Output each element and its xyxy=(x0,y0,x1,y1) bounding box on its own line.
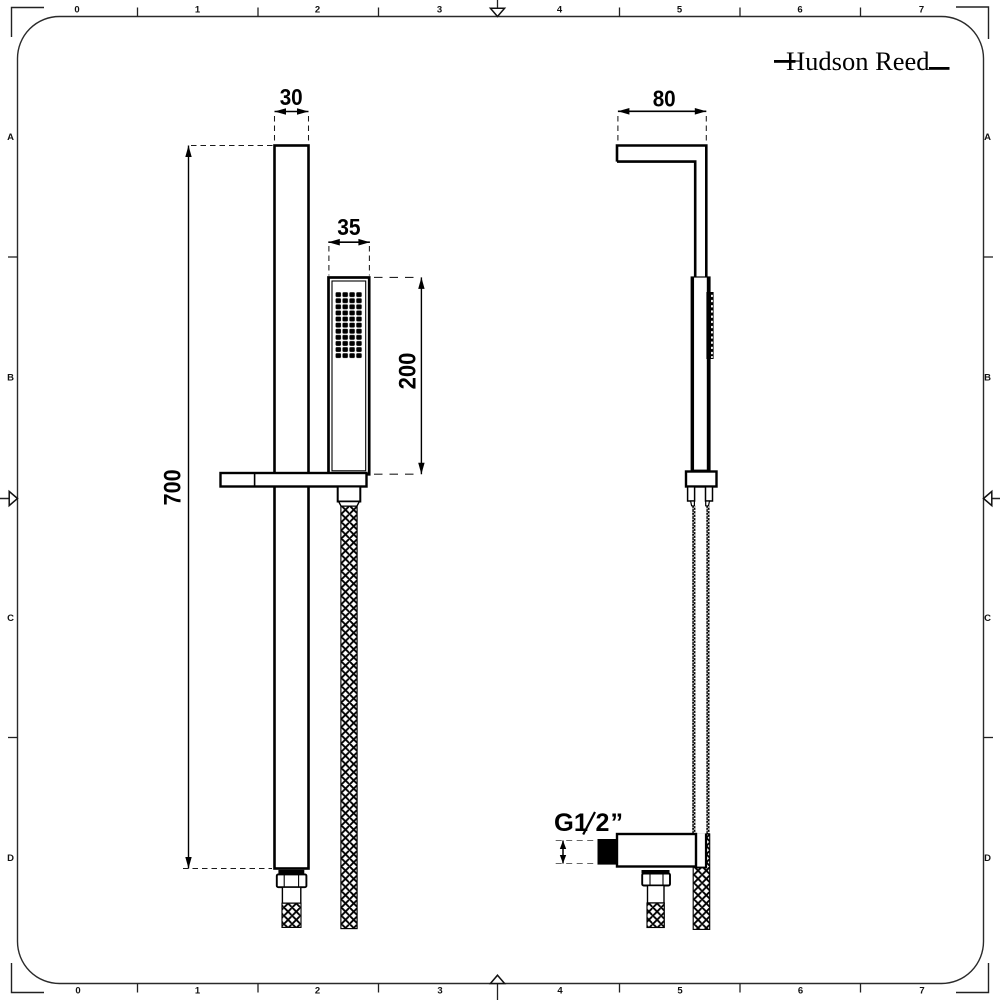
svg-text:3: 3 xyxy=(437,986,442,997)
svg-text:1: 1 xyxy=(195,986,201,997)
svg-text:D: D xyxy=(7,853,14,864)
svg-text:6: 6 xyxy=(797,5,802,16)
svg-text:A: A xyxy=(984,132,991,143)
svg-text:Hudson Reed: Hudson Reed xyxy=(786,46,930,76)
svg-text:3: 3 xyxy=(437,5,442,16)
svg-text:700: 700 xyxy=(160,469,187,505)
svg-text:5: 5 xyxy=(677,5,683,16)
svg-text:”: ” xyxy=(611,809,624,837)
svg-text:5: 5 xyxy=(677,986,683,997)
svg-text:C: C xyxy=(7,613,14,624)
svg-text:7: 7 xyxy=(919,986,924,997)
svg-text:30: 30 xyxy=(280,84,303,110)
svg-text:80: 80 xyxy=(653,85,676,111)
svg-text:1: 1 xyxy=(195,5,201,16)
svg-text:D: D xyxy=(984,853,991,864)
svg-text:0: 0 xyxy=(74,5,79,16)
svg-text:2: 2 xyxy=(315,986,320,997)
svg-text:7: 7 xyxy=(919,5,924,16)
svg-text:4: 4 xyxy=(557,5,563,16)
svg-text:B: B xyxy=(984,373,991,384)
svg-text:A: A xyxy=(7,132,14,143)
svg-text:6: 6 xyxy=(798,986,803,997)
svg-text:200: 200 xyxy=(395,353,422,390)
svg-text:2: 2 xyxy=(315,5,320,16)
svg-text:C: C xyxy=(984,613,991,624)
svg-text:0: 0 xyxy=(75,986,80,997)
svg-text:35: 35 xyxy=(337,214,361,240)
svg-text:4: 4 xyxy=(557,986,563,997)
svg-text:2: 2 xyxy=(596,809,610,837)
svg-text:B: B xyxy=(7,373,14,384)
